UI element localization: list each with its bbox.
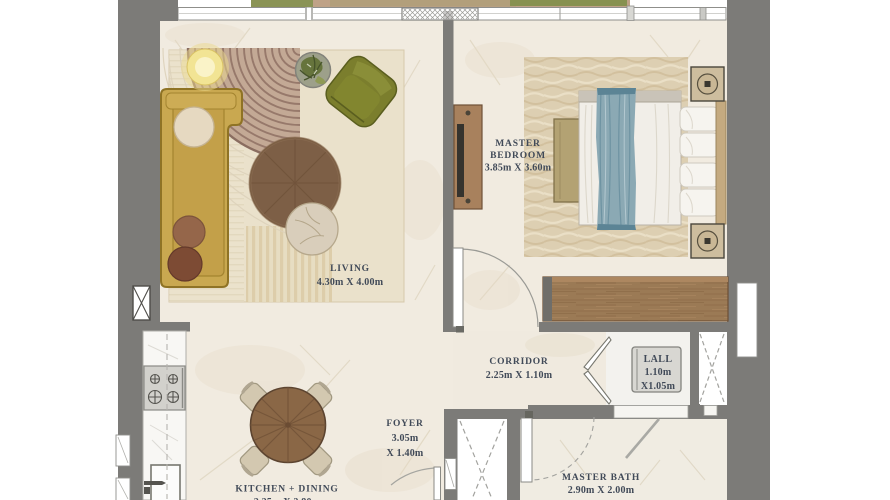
- svg-text:1.10m: 1.10m: [645, 367, 672, 378]
- svg-text:MASTER BATH: MASTER BATH: [562, 473, 640, 483]
- svg-text:KITCHEN + DINING: KITCHEN + DINING: [235, 485, 338, 495]
- svg-text:2.90m X 2.00m: 2.90m X 2.00m: [568, 485, 635, 496]
- svg-text:3.85m X 3.60m: 3.85m X 3.60m: [485, 163, 552, 174]
- svg-text:3.05m: 3.05m: [392, 433, 419, 444]
- svg-text:4.30m X 4.00m: 4.30m X 4.00m: [317, 277, 384, 288]
- svg-text:LALL: LALL: [644, 354, 673, 365]
- svg-text:X 1.40m: X 1.40m: [387, 448, 424, 459]
- svg-text:LIVING: LIVING: [330, 264, 370, 274]
- svg-text:CORRIDOR: CORRIDOR: [489, 357, 548, 367]
- svg-text:MASTER: MASTER: [495, 139, 540, 149]
- svg-text:FOYER: FOYER: [386, 419, 423, 429]
- svg-text:BEDROOM: BEDROOM: [490, 151, 546, 161]
- svg-text:2.25m X 1.10m: 2.25m X 1.10m: [486, 370, 553, 381]
- svg-text:X1.05m: X1.05m: [641, 381, 676, 392]
